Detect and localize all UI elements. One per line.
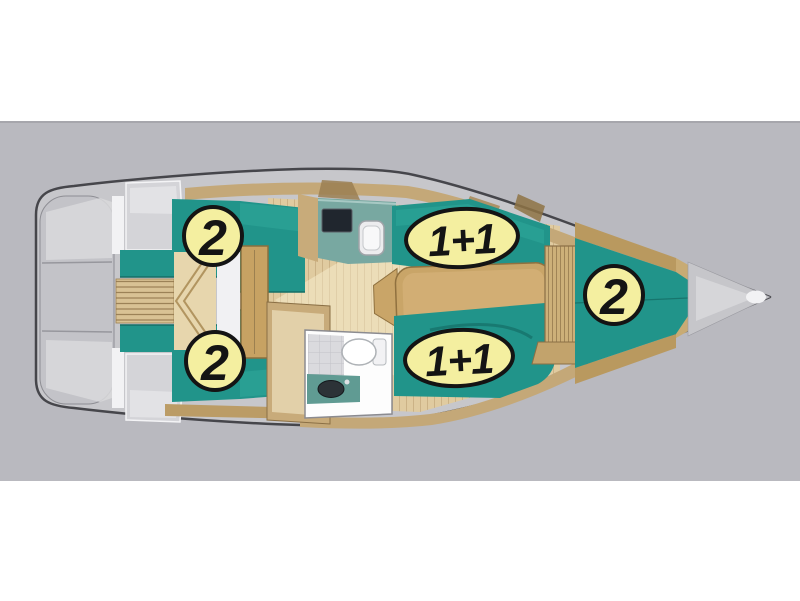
cooktop-icon [322,209,352,232]
step-tread-lines [116,279,174,323]
galley-bulkhead [298,194,318,262]
faucet-icon [345,380,350,385]
washbasin-icon [318,381,344,398]
boat-layout-canvas: 2 1+1 2 2 1+1 [0,0,800,601]
transom-seam-bottom [42,331,112,332]
badge-aft-cabin-starboard: 2 [186,332,244,391]
galley [298,194,396,264]
badge-text: 2 [599,269,628,325]
badge-aft-cabin-port: 2 [184,207,242,266]
badge-text: 2 [198,210,227,266]
badge-text: 2 [200,335,229,391]
transom-seam-top [42,262,112,263]
deck-plan-svg: 2 1+1 2 2 1+1 [0,0,800,601]
badge-forward-cabin: 2 [585,266,643,325]
head-compartment [305,330,392,418]
cockpit-gap-top [112,196,124,254]
backdrop-edge-line [0,121,800,123]
badge-text: 1+1 [424,335,495,386]
head-tile-grid [308,334,344,376]
bow-fitting [746,291,766,304]
cockpit-seat-port-highlight [130,186,178,214]
toilet-icon [342,339,376,365]
badge-text: 1+1 [427,215,498,266]
sink-basin [363,226,380,250]
cockpit-gap-bottom [112,348,124,408]
